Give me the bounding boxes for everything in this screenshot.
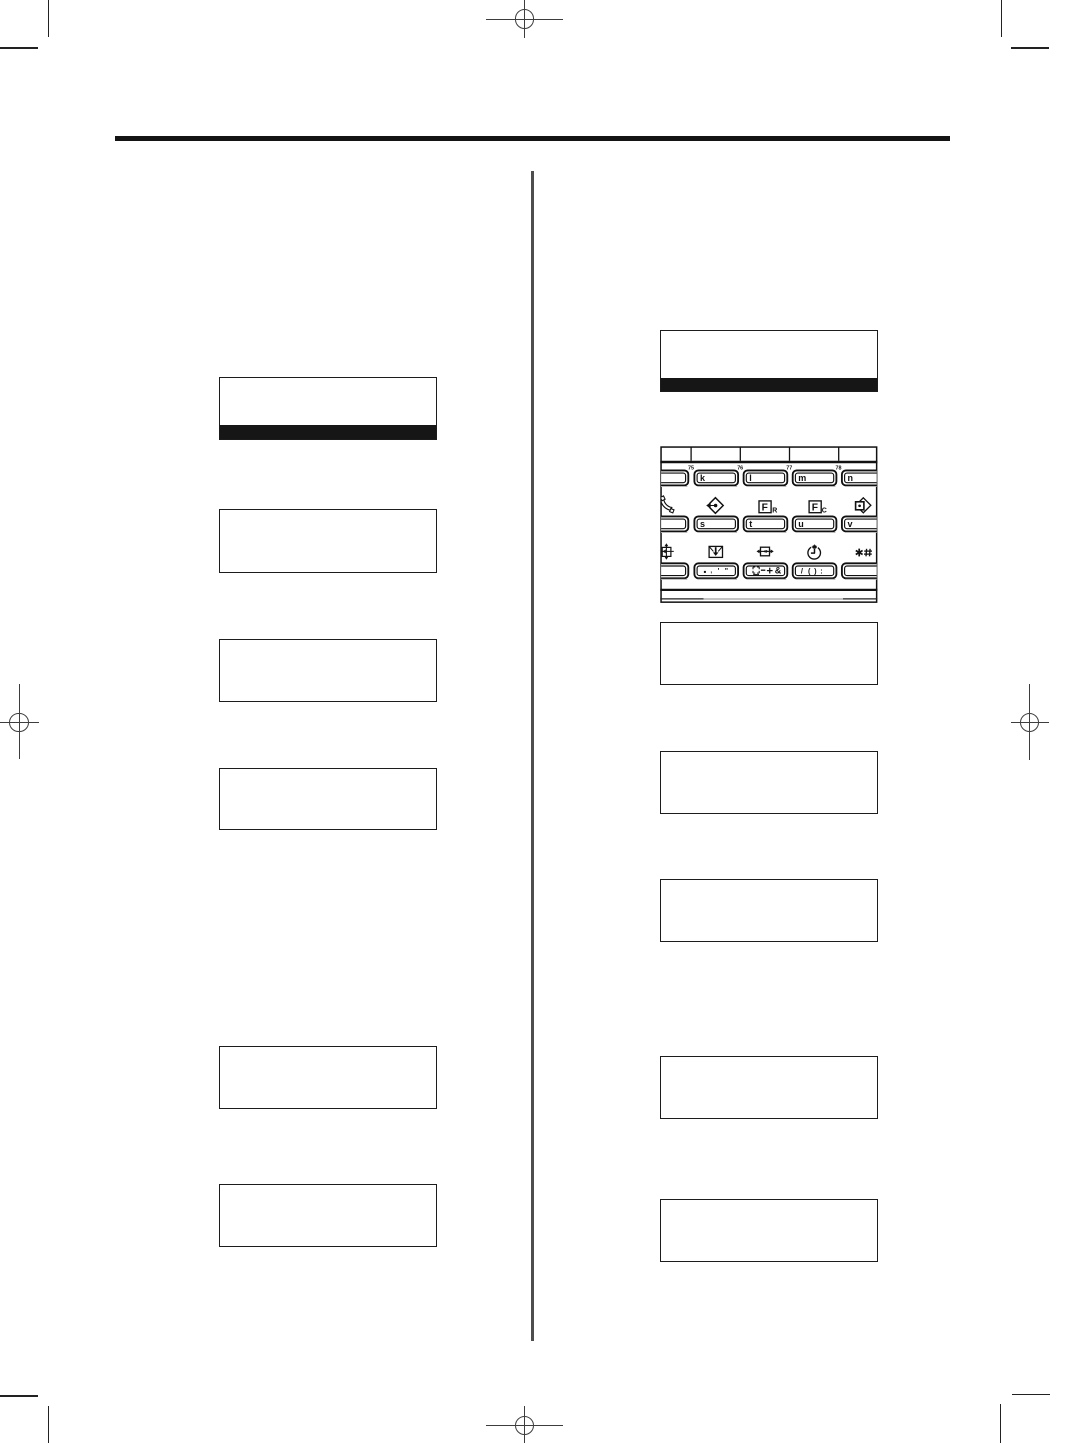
svg-text:75: 75 [688, 465, 694, 471]
svg-text:,: , [710, 567, 712, 574]
svg-text:u: u [798, 519, 804, 529]
svg-text:s: s [700, 519, 705, 529]
svg-text:R: R [772, 507, 777, 514]
svg-text:&: & [775, 566, 782, 576]
svg-text:": " [725, 568, 728, 575]
svg-text:76: 76 [737, 465, 743, 471]
svg-text:C: C [822, 507, 827, 514]
svg-text:F: F [812, 503, 818, 514]
svg-text:t: t [749, 519, 752, 529]
svg-text:F: F [762, 503, 768, 514]
svg-text:v: v [848, 519, 853, 529]
svg-text:l: l [749, 473, 752, 483]
svg-text:m: m [798, 473, 806, 483]
svg-text:/: / [801, 567, 803, 576]
svg-text:77: 77 [786, 465, 792, 471]
svg-text::: : [820, 567, 822, 576]
svg-text:78: 78 [836, 465, 842, 471]
svg-text:n: n [848, 473, 854, 483]
